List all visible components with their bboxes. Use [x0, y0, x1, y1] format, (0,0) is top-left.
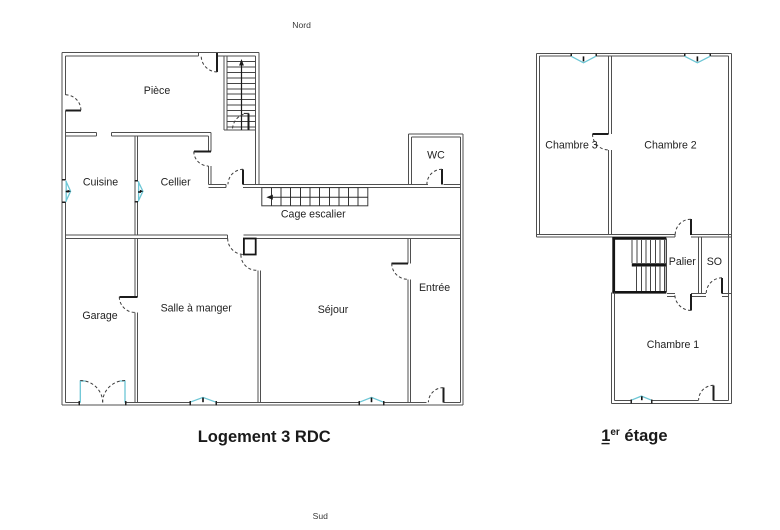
- svg-text:Chambre 3: Chambre 3: [545, 140, 598, 152]
- svg-text:Logement 3 RDC: Logement 3 RDC: [198, 428, 331, 446]
- svg-text:Cellier: Cellier: [161, 177, 191, 189]
- svg-text:Palier: Palier: [669, 256, 697, 268]
- svg-text:SO: SO: [707, 256, 722, 268]
- svg-text:Salle à manger: Salle à manger: [161, 302, 233, 314]
- svg-text:Cuisine: Cuisine: [83, 177, 118, 189]
- svg-text:Cage escalier: Cage escalier: [281, 209, 346, 221]
- svg-text:Sud: Sud: [313, 511, 329, 521]
- svg-text:Pièce: Pièce: [144, 85, 171, 97]
- svg-text:Chambre 1: Chambre 1: [647, 339, 700, 351]
- svg-text:WC: WC: [427, 150, 445, 162]
- svg-text:Garage: Garage: [82, 310, 117, 322]
- svg-text:Entrée: Entrée: [419, 282, 450, 294]
- svg-text:Nord: Nord: [292, 20, 311, 30]
- svg-text:Séjour: Séjour: [318, 304, 349, 316]
- svg-text:Chambre 2: Chambre 2: [644, 140, 697, 152]
